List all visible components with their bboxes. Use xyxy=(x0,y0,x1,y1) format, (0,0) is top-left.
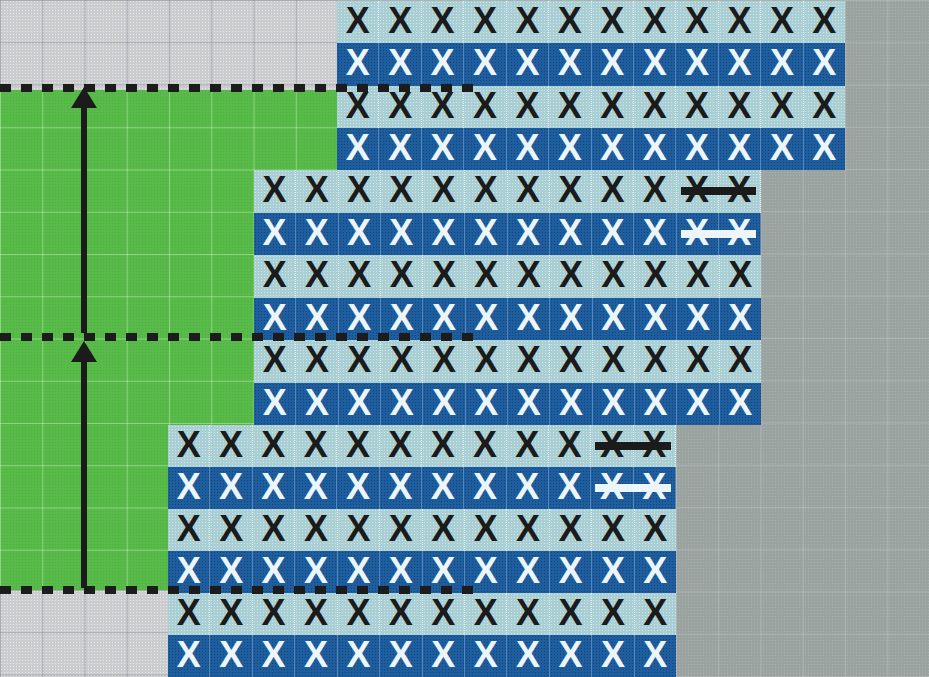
x-mark: X xyxy=(262,553,286,589)
stitch-cell: X xyxy=(423,383,465,426)
x-mark: X xyxy=(431,88,455,124)
stitch-cell: X xyxy=(465,213,507,256)
x-mark: X xyxy=(601,511,625,547)
stitch-cell: X xyxy=(253,467,295,509)
x-mark: X xyxy=(770,130,794,166)
x-mark: X xyxy=(390,342,414,378)
x-mark: X xyxy=(516,172,540,208)
stitch-cell: X xyxy=(253,635,295,677)
stitch-cell: X xyxy=(550,213,592,256)
stitch-cell: X xyxy=(254,213,296,256)
x-mark: X xyxy=(219,595,243,631)
stitch-cell: X xyxy=(507,1,549,43)
stitch-cell: X xyxy=(254,383,296,426)
x-mark: X xyxy=(559,257,583,293)
x-mark: X xyxy=(728,130,752,166)
x-mark: X xyxy=(305,300,329,336)
x-mark: X xyxy=(516,215,540,251)
x-mark: X xyxy=(516,595,540,631)
stitch-cell: X xyxy=(295,509,337,551)
stitch-row: XXXXXXXXXXXX xyxy=(337,128,845,170)
x-mark: X xyxy=(263,342,287,378)
x-mark: X xyxy=(431,595,455,631)
x-mark: X xyxy=(559,511,583,547)
stitch-cell: X xyxy=(379,43,421,85)
stitch-cell: X xyxy=(593,340,635,383)
x-mark: X xyxy=(390,300,414,336)
x-mark: X xyxy=(601,637,625,673)
x-mark: X xyxy=(305,215,329,251)
x-mark: X xyxy=(516,637,540,673)
x-mark: X xyxy=(685,45,709,81)
x-mark: X xyxy=(558,130,582,166)
x-mark: X xyxy=(346,595,370,631)
x-mark: X xyxy=(812,130,836,166)
stitch-row: XXXXXXXXXXXX xyxy=(168,467,676,509)
stitch-cell: X xyxy=(677,340,719,383)
x-mark: X xyxy=(388,130,412,166)
x-mark: X xyxy=(305,172,329,208)
stitch-cell: X xyxy=(676,43,718,85)
stitch-cell: X xyxy=(507,425,549,467)
pattern-chart-canvas: XXXXXXXXXXXXXXXXXXXXXXXXXXXXXXXXXXXXXXXX… xyxy=(0,0,929,677)
stitch-cell: X xyxy=(210,635,252,677)
stitch-cell: X xyxy=(592,551,634,593)
x-mark: X xyxy=(643,215,667,251)
x-mark: X xyxy=(263,300,287,336)
x-mark: X xyxy=(432,300,456,336)
stitch-cell: X xyxy=(508,255,550,298)
stitch-cell: X xyxy=(210,425,252,467)
stitch-cell: X xyxy=(761,1,803,43)
x-mark: X xyxy=(346,553,370,589)
x-mark: X xyxy=(346,88,370,124)
stitch-cell: X xyxy=(380,509,422,551)
x-mark: X xyxy=(601,385,625,421)
stitch-cell: X xyxy=(210,509,252,551)
x-mark: X xyxy=(559,595,583,631)
x-mark: X xyxy=(388,3,412,39)
stitch-row: XXXXXXXXXXXX xyxy=(254,255,761,298)
stitch-cell: X xyxy=(465,593,507,635)
stitch-cell: X xyxy=(592,509,634,551)
x-mark: X xyxy=(558,45,582,81)
stitch-cell: X xyxy=(719,43,761,85)
x-mark: X xyxy=(219,553,243,589)
x-mark: X xyxy=(474,342,498,378)
x-mark: X xyxy=(600,88,624,124)
stitch-cell: X xyxy=(339,170,381,213)
stitch-cell: X xyxy=(634,170,676,213)
x-mark: X xyxy=(515,469,539,505)
x-mark: X xyxy=(559,553,583,589)
x-mark: X xyxy=(346,130,370,166)
stitch-cell: X xyxy=(507,128,549,170)
x-mark: X xyxy=(346,511,370,547)
x-mark: X xyxy=(770,45,794,81)
stitch-cell: X xyxy=(592,1,634,43)
x-mark: X xyxy=(219,427,243,463)
stitch-cell: X xyxy=(337,425,379,467)
stitch-cell: X xyxy=(422,467,464,509)
x-mark: X xyxy=(770,3,794,39)
stitch-row: XXXXXXXXXXXX xyxy=(168,509,676,551)
stitch-cell: X xyxy=(720,298,761,341)
x-mark: X xyxy=(559,342,583,378)
x-mark: X xyxy=(473,427,497,463)
stitch-cell: X xyxy=(550,383,592,426)
x-mark: X xyxy=(431,45,455,81)
x-mark: X xyxy=(517,257,541,293)
stitch-cell: X xyxy=(677,298,719,341)
x-mark: X xyxy=(685,88,709,124)
x-mark: X xyxy=(601,257,625,293)
stitch-cell: X xyxy=(634,1,676,43)
stitch-cell: X xyxy=(761,43,803,85)
x-mark: X xyxy=(685,3,709,39)
stitch-cell: X xyxy=(550,593,592,635)
stitch-cell: X xyxy=(635,340,677,383)
x-mark: X xyxy=(473,130,497,166)
x-mark: X xyxy=(304,427,328,463)
stitch-cell: X xyxy=(635,298,677,341)
stitch-cell: X xyxy=(507,43,549,85)
stitch-cell: X xyxy=(337,1,379,43)
stitch-cell: X xyxy=(549,86,591,128)
x-mark: X xyxy=(432,172,456,208)
stitch-cell: X xyxy=(422,43,464,85)
x-mark: X xyxy=(177,637,201,673)
x-mark: X xyxy=(558,3,582,39)
stitch-cell: X xyxy=(720,383,761,426)
x-mark: X xyxy=(643,511,667,547)
stitch-cell: X xyxy=(254,170,296,213)
x-mark: X xyxy=(263,385,287,421)
stitch-cell: X xyxy=(338,509,380,551)
stitch-row: XXXXXXXXXXXX xyxy=(337,1,845,43)
x-mark: X xyxy=(347,300,371,336)
stitch-cell: X xyxy=(508,213,550,256)
x-mark: X xyxy=(643,637,667,673)
stitch-cell: X xyxy=(592,170,634,213)
x-mark: X xyxy=(601,300,625,336)
x-mark: X xyxy=(643,88,667,124)
stitch-cell: X xyxy=(338,593,380,635)
x-mark: X xyxy=(390,385,414,421)
repeat-boundary-dotted-line xyxy=(0,333,478,341)
stitch-cell: X xyxy=(423,213,465,256)
x-mark: X xyxy=(219,637,243,673)
stitch-cell: X xyxy=(338,635,380,677)
x-mark: X xyxy=(601,553,625,589)
x-mark: X xyxy=(431,427,455,463)
x-mark: X xyxy=(516,511,540,547)
x-mark: X xyxy=(559,385,583,421)
x-mark: X xyxy=(515,45,539,81)
stitch-cell: X xyxy=(168,635,210,677)
x-mark: X xyxy=(600,130,624,166)
stitch-cell: X xyxy=(423,255,465,298)
x-mark: X xyxy=(305,342,329,378)
strikethrough-mark xyxy=(681,187,756,195)
x-mark: X xyxy=(473,88,497,124)
x-mark: X xyxy=(389,511,413,547)
stitch-cell: X xyxy=(210,593,252,635)
stitch-cell: X xyxy=(507,551,549,593)
x-mark: X xyxy=(643,172,667,208)
x-mark: X xyxy=(177,469,201,505)
stitch-cell: X xyxy=(550,298,592,341)
stitch-cell: X xyxy=(549,128,591,170)
stitch-cell: X xyxy=(635,593,676,635)
stitch-cell: X xyxy=(465,509,507,551)
stitch-cell: X xyxy=(253,593,295,635)
stitch-cell: X xyxy=(466,340,508,383)
stitch-cell: X xyxy=(339,383,381,426)
stitch-cell: X xyxy=(507,509,549,551)
x-mark: X xyxy=(644,385,668,421)
stitch-cell: X xyxy=(635,383,677,426)
x-mark: X xyxy=(304,595,328,631)
stitch-cell: X xyxy=(423,635,465,677)
x-mark: X xyxy=(643,45,667,81)
stitch-cell: X xyxy=(422,128,464,170)
stitch-row: XXXXXXXXXXXX xyxy=(337,43,845,85)
x-mark: X xyxy=(431,637,455,673)
stitch-cell: X xyxy=(550,255,592,298)
strikethrough-mark xyxy=(681,230,756,238)
stitch-cell: X xyxy=(295,467,337,509)
x-mark: X xyxy=(473,3,497,39)
stitch-cell: X xyxy=(296,255,338,298)
x-mark: X xyxy=(177,427,201,463)
stitch-cell: X xyxy=(592,128,634,170)
x-mark: X xyxy=(346,427,370,463)
x-mark: X xyxy=(177,595,201,631)
stitch-cell: X xyxy=(168,425,210,467)
stitch-cell: X xyxy=(507,86,549,128)
x-mark: X xyxy=(686,342,710,378)
arrow-head-up-icon xyxy=(71,341,97,362)
x-mark: X xyxy=(177,511,201,547)
stitch-block-3: XXXXXXXXXXXXXXXXXXXXXXXXXXXXXXXXXXXXXXXX… xyxy=(168,425,676,677)
x-mark: X xyxy=(558,88,582,124)
stitch-cell: X xyxy=(381,340,423,383)
x-mark: X xyxy=(728,88,752,124)
x-mark: X xyxy=(219,469,243,505)
x-mark: X xyxy=(515,88,539,124)
stitch-cell: X xyxy=(635,551,676,593)
stitch-cell: X xyxy=(593,383,635,426)
stitch-cell: X xyxy=(464,425,506,467)
x-mark: X xyxy=(304,469,328,505)
stitch-cell: X xyxy=(168,593,210,635)
x-mark: X xyxy=(347,215,371,251)
x-mark: X xyxy=(474,215,498,251)
stitch-cell: X xyxy=(719,1,761,43)
x-mark: X xyxy=(347,257,371,293)
stitch-cell: X xyxy=(676,1,718,43)
x-mark: X xyxy=(346,45,370,81)
stitch-cell: X xyxy=(677,255,719,298)
stitch-cell: X xyxy=(466,255,508,298)
x-mark: X xyxy=(262,511,286,547)
x-mark: X xyxy=(390,257,414,293)
stitch-cell: X xyxy=(380,593,422,635)
x-mark: X xyxy=(388,469,412,505)
x-mark: X xyxy=(643,130,667,166)
x-mark: X xyxy=(177,553,201,589)
x-mark: X xyxy=(389,172,413,208)
stitch-row: XXXXXXXXXXXX xyxy=(168,425,676,467)
stitch-cell: X xyxy=(592,635,634,677)
x-mark: X xyxy=(262,595,286,631)
x-mark: X xyxy=(515,3,539,39)
stitch-cell: X xyxy=(550,170,592,213)
stitch-cell: X xyxy=(466,383,508,426)
stitch-cell: X xyxy=(295,635,337,677)
x-mark: X xyxy=(601,342,625,378)
stitch-cell: X xyxy=(719,86,761,128)
x-mark: X xyxy=(644,342,668,378)
stitch-cell: X xyxy=(549,43,591,85)
stitch-block-2: XXXXXXXXXXXXXXXXXXXXXXXXXXXXXXXXXXXXXXXX… xyxy=(254,170,761,425)
stitch-cell: X xyxy=(381,255,423,298)
x-mark: X xyxy=(728,385,752,421)
stitch-cell: X xyxy=(296,213,338,256)
x-mark: X xyxy=(559,637,583,673)
x-mark: X xyxy=(558,172,582,208)
stitch-cell: X xyxy=(593,255,635,298)
stitch-cell: X xyxy=(720,340,761,383)
x-mark: X xyxy=(770,88,794,124)
strikethrough-mark xyxy=(595,484,671,492)
stitch-cell: X xyxy=(381,170,423,213)
arrow-shaft xyxy=(81,360,87,588)
stitch-cell: X xyxy=(804,128,845,170)
x-mark: X xyxy=(432,385,456,421)
stitch-cell: X xyxy=(677,383,719,426)
x-mark: X xyxy=(517,385,541,421)
background-top-left-area xyxy=(0,0,338,90)
x-mark: X xyxy=(643,553,667,589)
x-mark: X xyxy=(601,215,625,251)
x-mark: X xyxy=(305,385,329,421)
stitch-cell: X xyxy=(550,340,592,383)
stitch-row: XXXXXXXXXXXX xyxy=(254,383,761,426)
stitch-cell: X xyxy=(549,467,591,509)
stitch-cell: X xyxy=(634,213,676,256)
x-mark: X xyxy=(516,553,540,589)
x-mark: X xyxy=(728,300,752,336)
stitch-cell: X xyxy=(168,509,210,551)
x-mark: X xyxy=(686,257,710,293)
x-mark: X xyxy=(644,300,668,336)
stitch-cell: X xyxy=(337,128,379,170)
x-mark: X xyxy=(389,595,413,631)
stitch-cell: X xyxy=(465,635,507,677)
stitch-cell: X xyxy=(380,425,422,467)
strikethrough-mark xyxy=(595,442,671,450)
stitch-cell: X xyxy=(719,128,761,170)
stitch-cell: X xyxy=(423,593,465,635)
stitch-cell: X xyxy=(508,170,550,213)
x-mark: X xyxy=(686,300,710,336)
stitch-cell: X xyxy=(464,43,506,85)
stitch-cell: X xyxy=(550,509,592,551)
x-mark: X xyxy=(728,45,752,81)
x-mark: X xyxy=(262,637,286,673)
x-mark: X xyxy=(431,130,455,166)
stitch-cell: X xyxy=(761,86,803,128)
stitch-cell: X xyxy=(508,298,550,341)
stitch-cell: X xyxy=(422,425,464,467)
stitch-cell: X xyxy=(379,1,421,43)
stitch-cell: X xyxy=(634,128,676,170)
stitch-cell: X xyxy=(295,425,337,467)
x-mark: X xyxy=(346,3,370,39)
x-mark: X xyxy=(263,215,287,251)
x-mark: X xyxy=(305,257,329,293)
stitch-cell: X xyxy=(592,593,634,635)
x-mark: X xyxy=(474,511,498,547)
x-mark: X xyxy=(474,637,498,673)
stitch-cell: X xyxy=(423,170,465,213)
stitch-cell: X xyxy=(379,128,421,170)
stitch-row: XXXXXXXXXXXX xyxy=(168,635,676,677)
stitch-cell: X xyxy=(549,425,591,467)
repeat-boundary-dotted-line xyxy=(0,586,478,594)
stitch-cell: X xyxy=(380,467,422,509)
arrow-shaft xyxy=(81,106,87,333)
stitch-cell: X xyxy=(423,340,465,383)
x-mark: X xyxy=(601,595,625,631)
stitch-cell: X xyxy=(761,128,803,170)
x-mark: X xyxy=(432,342,456,378)
stitch-cell: X xyxy=(337,467,379,509)
stitch-cell: X xyxy=(804,43,845,85)
x-mark: X xyxy=(304,511,328,547)
x-mark: X xyxy=(261,427,285,463)
x-mark: X xyxy=(559,300,583,336)
stitch-cell: X xyxy=(254,255,296,298)
x-mark: X xyxy=(347,342,371,378)
x-mark: X xyxy=(389,553,413,589)
stitch-cell: X xyxy=(381,383,423,426)
x-mark: X xyxy=(431,3,455,39)
x-mark: X xyxy=(685,130,709,166)
x-mark: X xyxy=(473,45,497,81)
x-mark: X xyxy=(389,215,413,251)
x-mark: X xyxy=(388,88,412,124)
stitch-cell: X xyxy=(337,43,379,85)
stitch-cell: X xyxy=(676,128,718,170)
x-mark: X xyxy=(601,172,625,208)
x-mark: X xyxy=(432,215,456,251)
x-mark: X xyxy=(389,637,413,673)
background-bottom-left-area xyxy=(0,590,168,677)
x-mark: X xyxy=(558,469,582,505)
stitch-cell: X xyxy=(381,213,423,256)
stitch-cell: X xyxy=(422,1,464,43)
x-mark: X xyxy=(388,427,412,463)
x-mark: X xyxy=(728,3,752,39)
stitch-cell: X xyxy=(592,43,634,85)
x-mark: X xyxy=(432,257,456,293)
x-mark: X xyxy=(219,511,243,547)
stitch-cell: X xyxy=(507,467,549,509)
x-mark: X xyxy=(517,342,541,378)
